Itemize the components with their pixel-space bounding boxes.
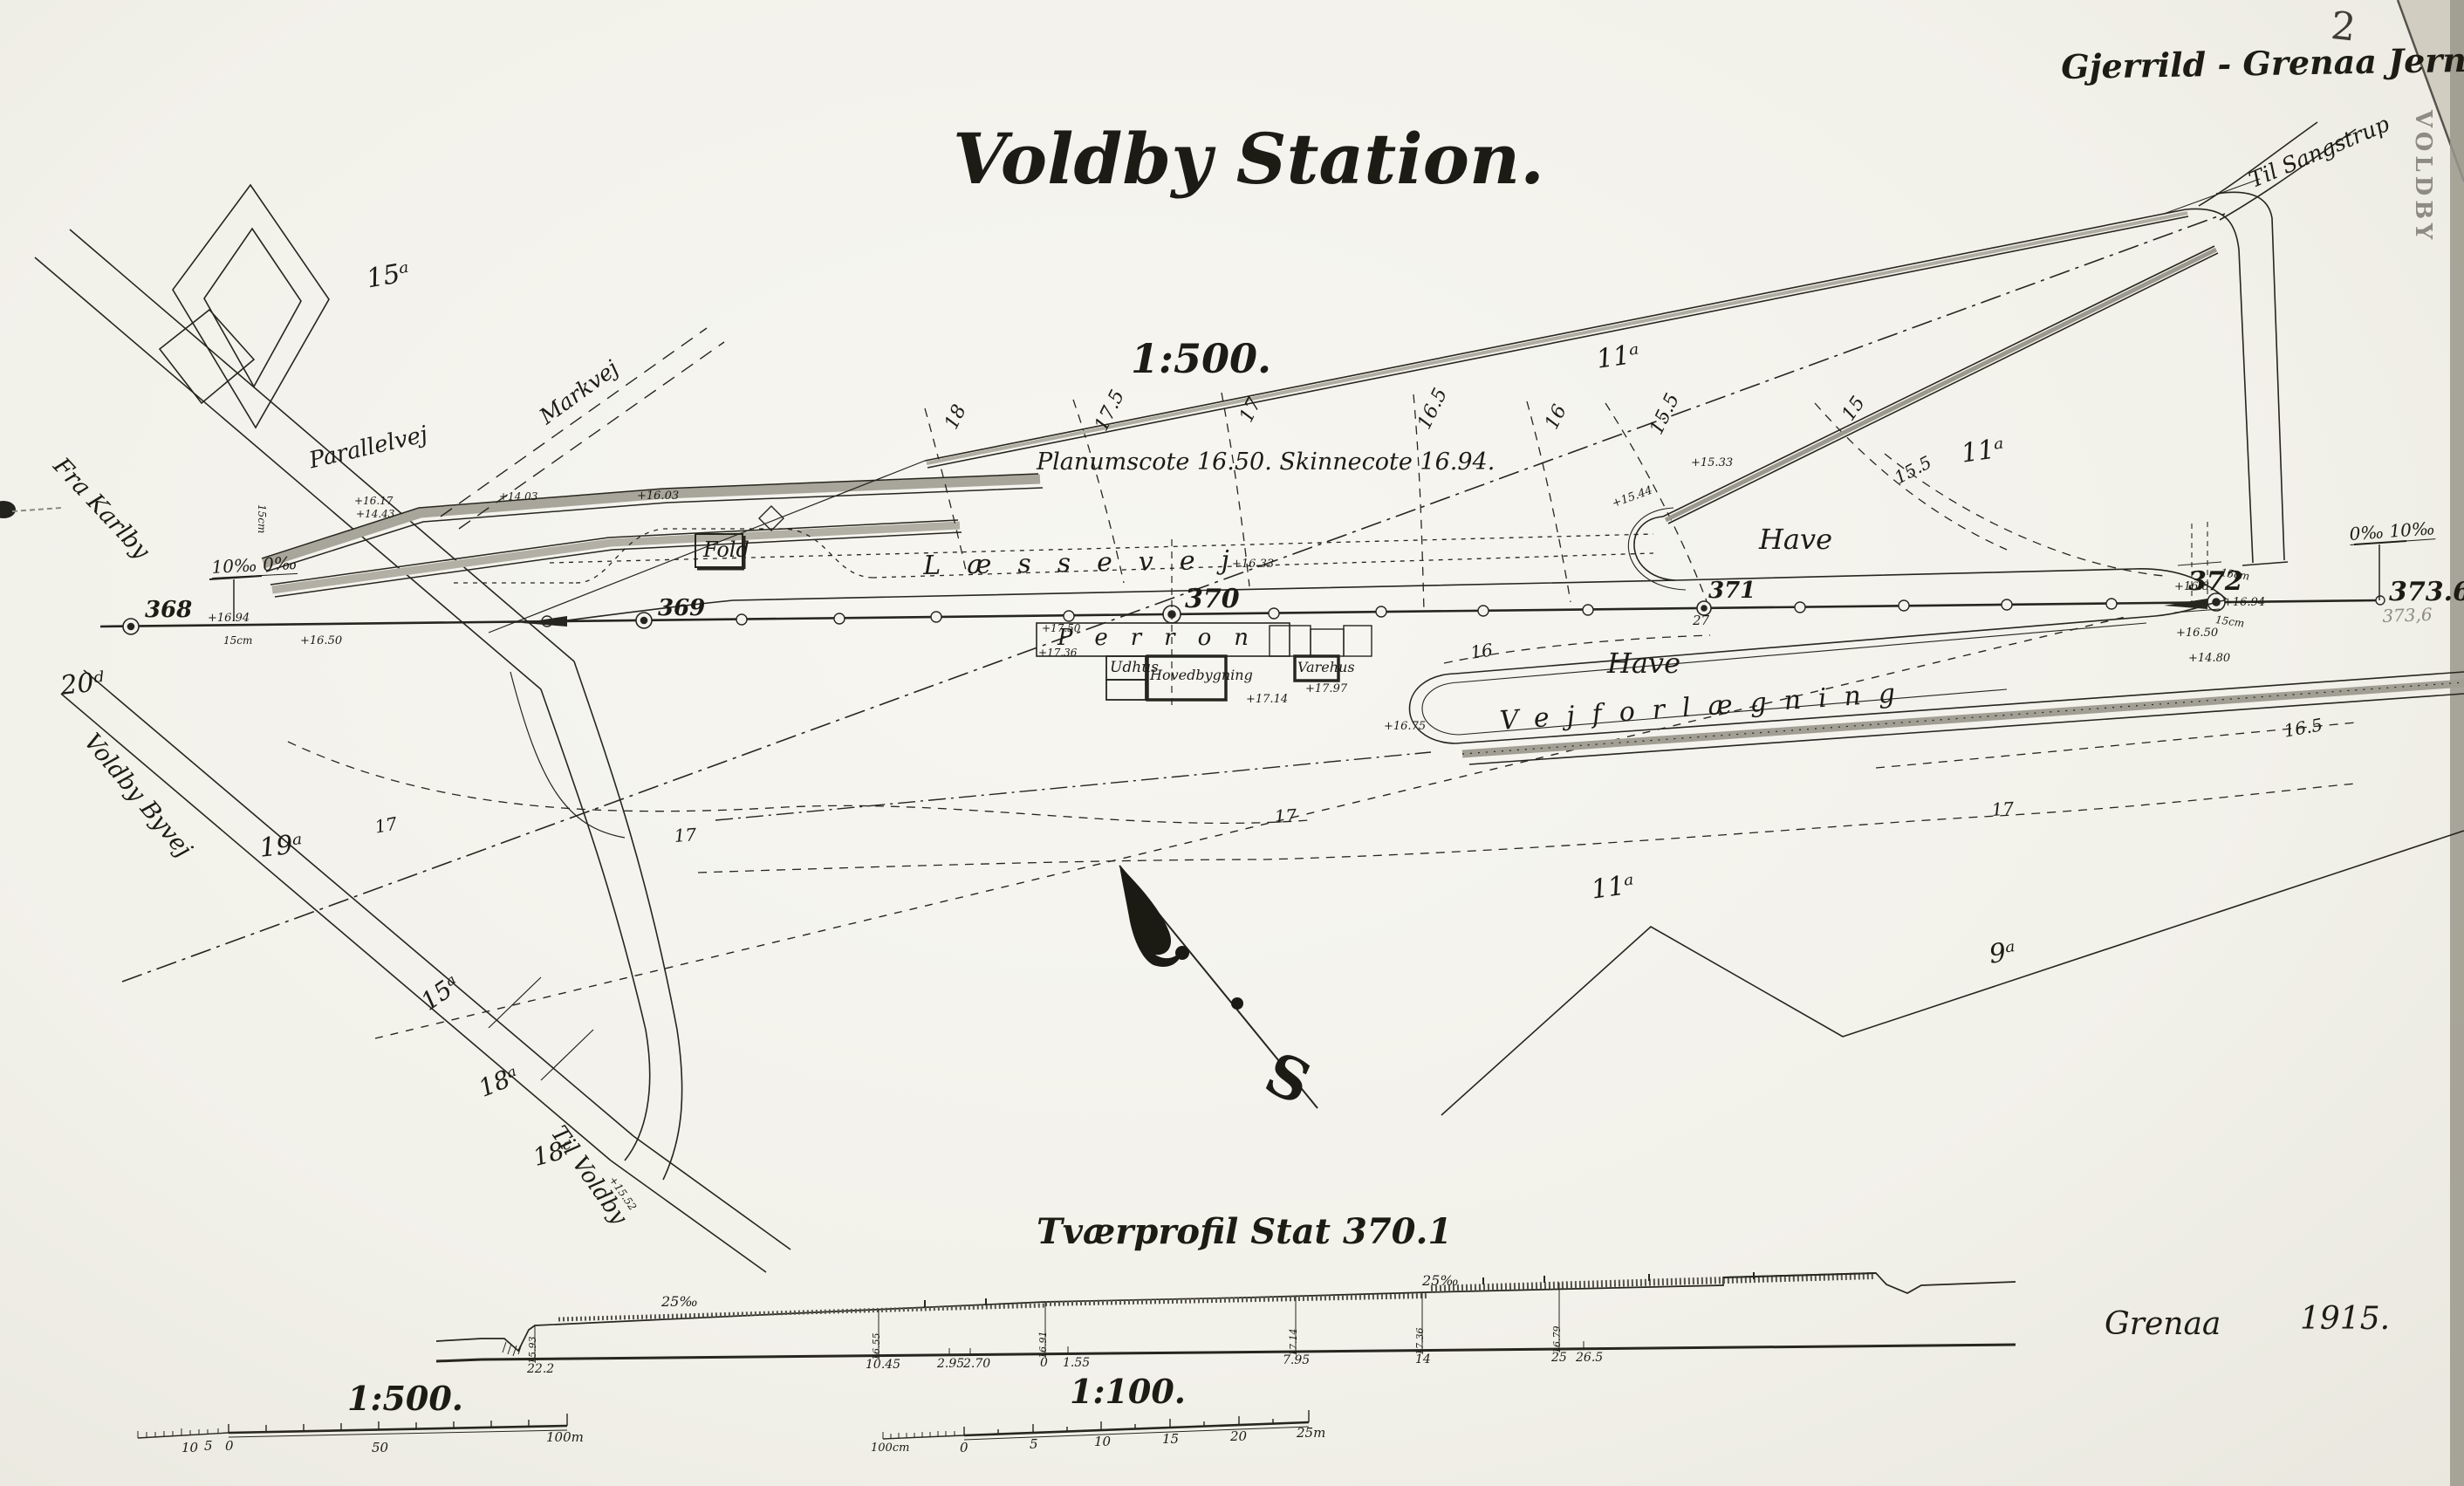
parcel-11a-low: 11ᵃ — [1590, 872, 1636, 904]
profile-distance: 10.45 — [866, 1359, 900, 1371]
profile-distance: 2.95 — [937, 1358, 964, 1370]
scale-500-label: 1:500. — [347, 1382, 463, 1415]
parcel-19a: 19ᵃ — [258, 832, 304, 862]
scale-100-tick: 25m — [1297, 1427, 1325, 1440]
spot-height: +16.03 — [637, 490, 679, 502]
railway-name: Gjerrild - Grenaa Jernbane. — [2061, 42, 2464, 84]
plan-linework — [0, 0, 2464, 1486]
gradient-marks — [209, 522, 2406, 621]
scale-500-tick: 10 — [181, 1441, 198, 1455]
boundary-lines — [122, 214, 2464, 1115]
profile-elevation: 17.14 — [1289, 1329, 1298, 1357]
station-371-sub: 27 — [1693, 614, 1709, 627]
spot-height: +16.50 — [2176, 627, 2218, 639]
spot-height: +16.50 — [300, 635, 342, 647]
footer-place: Grenaa — [2105, 1309, 2221, 1340]
station-368: 368 — [145, 599, 192, 621]
spot-height: +16.94 — [208, 613, 250, 624]
profile-distance: 26.5 — [1576, 1352, 1603, 1364]
spot-height: +17.36 — [1038, 647, 1077, 658]
profile-distance: 14 — [1415, 1353, 1431, 1366]
profile-distance: 0 — [1040, 1357, 1048, 1369]
station-plan-sheet: Gjerrild - Grenaa Jernbane. 2 VOLDBY Vol… — [0, 0, 2464, 1486]
spot-height: +17.97 — [1305, 683, 1347, 695]
scale-100-tick: 20 — [1230, 1430, 1247, 1443]
spot-height: +14.03 — [499, 491, 537, 502]
parcel-9a: 9ᵃ — [1988, 939, 2017, 969]
spot-height: +16.33 — [1232, 558, 1274, 570]
dim-15cm: 15cm — [223, 635, 252, 646]
spot-height: +15.33 — [1691, 457, 1733, 469]
road-laessevej: Læssevej — [923, 547, 1256, 579]
scale-100-tick: 5 — [1030, 1438, 1038, 1451]
footer-year: 1915. — [2300, 1304, 2390, 1335]
scale-500-tick: 5 — [204, 1440, 213, 1453]
profile-distance: 25 — [1551, 1352, 1567, 1364]
scale-100-tick: 15 — [1162, 1433, 1179, 1446]
edge-stamp: VOLDBY — [2412, 110, 2434, 243]
left-roads — [35, 229, 791, 1272]
profile-distance: 1.55 — [1063, 1357, 1090, 1369]
profile-elevation: 16.91 — [1038, 1332, 1048, 1359]
perron-label: Perron — [1057, 627, 1271, 649]
station-369: 369 — [658, 597, 705, 620]
scale-500-tick: 100m — [546, 1431, 584, 1444]
have-lower-label: Have — [1607, 649, 1680, 677]
profile-drawing — [436, 1272, 2016, 1361]
scale-100-tick: 0 — [960, 1441, 968, 1455]
profile-distance: 7.95 — [1283, 1354, 1310, 1366]
plan-scale: 1:500. — [1131, 339, 1271, 379]
spot-height: +17.50 — [1042, 623, 1080, 633]
spot-height: +17.14 — [1246, 694, 1288, 705]
contour-16-loop: 16 — [1469, 640, 1494, 661]
profile-distance: 22.2 — [527, 1363, 554, 1375]
spot-height: +14.43 — [356, 509, 394, 519]
hovedbygning-label: Hovedbygning — [1150, 668, 1253, 682]
parcel-15a-top: 15ᵃ — [365, 259, 412, 292]
profile-grade-left: 25‰ — [661, 1295, 698, 1309]
scale-100-tick: 10 — [1094, 1435, 1111, 1448]
spot-height: +14.80 — [2188, 653, 2230, 664]
varehus-label: Varehus — [1297, 661, 1355, 675]
spot-height: +16.8 — [2174, 581, 2209, 592]
spot-height: +16.17 — [354, 496, 393, 506]
end-chainage-alt: 373,6 — [2382, 606, 2433, 625]
profile-title: Tværprofil Stat 370.1 — [1037, 1215, 1452, 1250]
sidings-and-loops — [560, 122, 2464, 764]
field-diamonds — [160, 185, 329, 428]
spot-height: +16.94 — [2223, 597, 2265, 608]
profile-distance: 2.70 — [963, 1358, 990, 1370]
parcel-11a-top: 11ᵃ — [1595, 341, 1641, 373]
profile-grade-right: 25‰ — [1422, 1274, 1459, 1288]
have-upper-label: Have — [1759, 525, 1832, 553]
contour-17-low-c: 17 — [1274, 806, 1297, 825]
sheet-number: 2 — [2329, 7, 2357, 48]
fold-label: Fold — [703, 539, 749, 560]
station-371: 371 — [1708, 579, 1756, 602]
profile-elevation: 16.55 — [872, 1333, 881, 1361]
station-370: 370 — [1185, 586, 1240, 613]
page-title: Voldby Station. — [953, 124, 1544, 194]
end-chainage: 373.60 — [2389, 579, 2464, 606]
sheet-edge — [0, 0, 2464, 1486]
spot-height: +16.75 — [1384, 721, 1426, 732]
scale-500-tick: 0 — [225, 1440, 234, 1453]
plan-note: Planumscote 16.50. Skinnecote 16.94. — [1037, 450, 1495, 474]
parcel-11a-right: 11ᵃ — [1960, 435, 2006, 468]
contour-17-low-b: 17 — [674, 825, 697, 845]
dim-15cm: 15cm — [257, 504, 267, 533]
scale-500-tick: 50 — [372, 1441, 388, 1455]
parcel-20d: 20ᵈ — [59, 669, 106, 700]
contour-17-low-d: 17 — [1991, 799, 2015, 818]
scale-100-tick: 100cm — [871, 1442, 909, 1454]
profile-elevation: 17.36 — [1415, 1328, 1425, 1356]
contour-17-low-a: 17 — [373, 815, 399, 836]
profile-elevation: 15.93 — [528, 1337, 537, 1365]
profile-elevation: 16.79 — [1552, 1326, 1562, 1354]
scale-100-label: 1:100. — [1070, 1375, 1186, 1408]
